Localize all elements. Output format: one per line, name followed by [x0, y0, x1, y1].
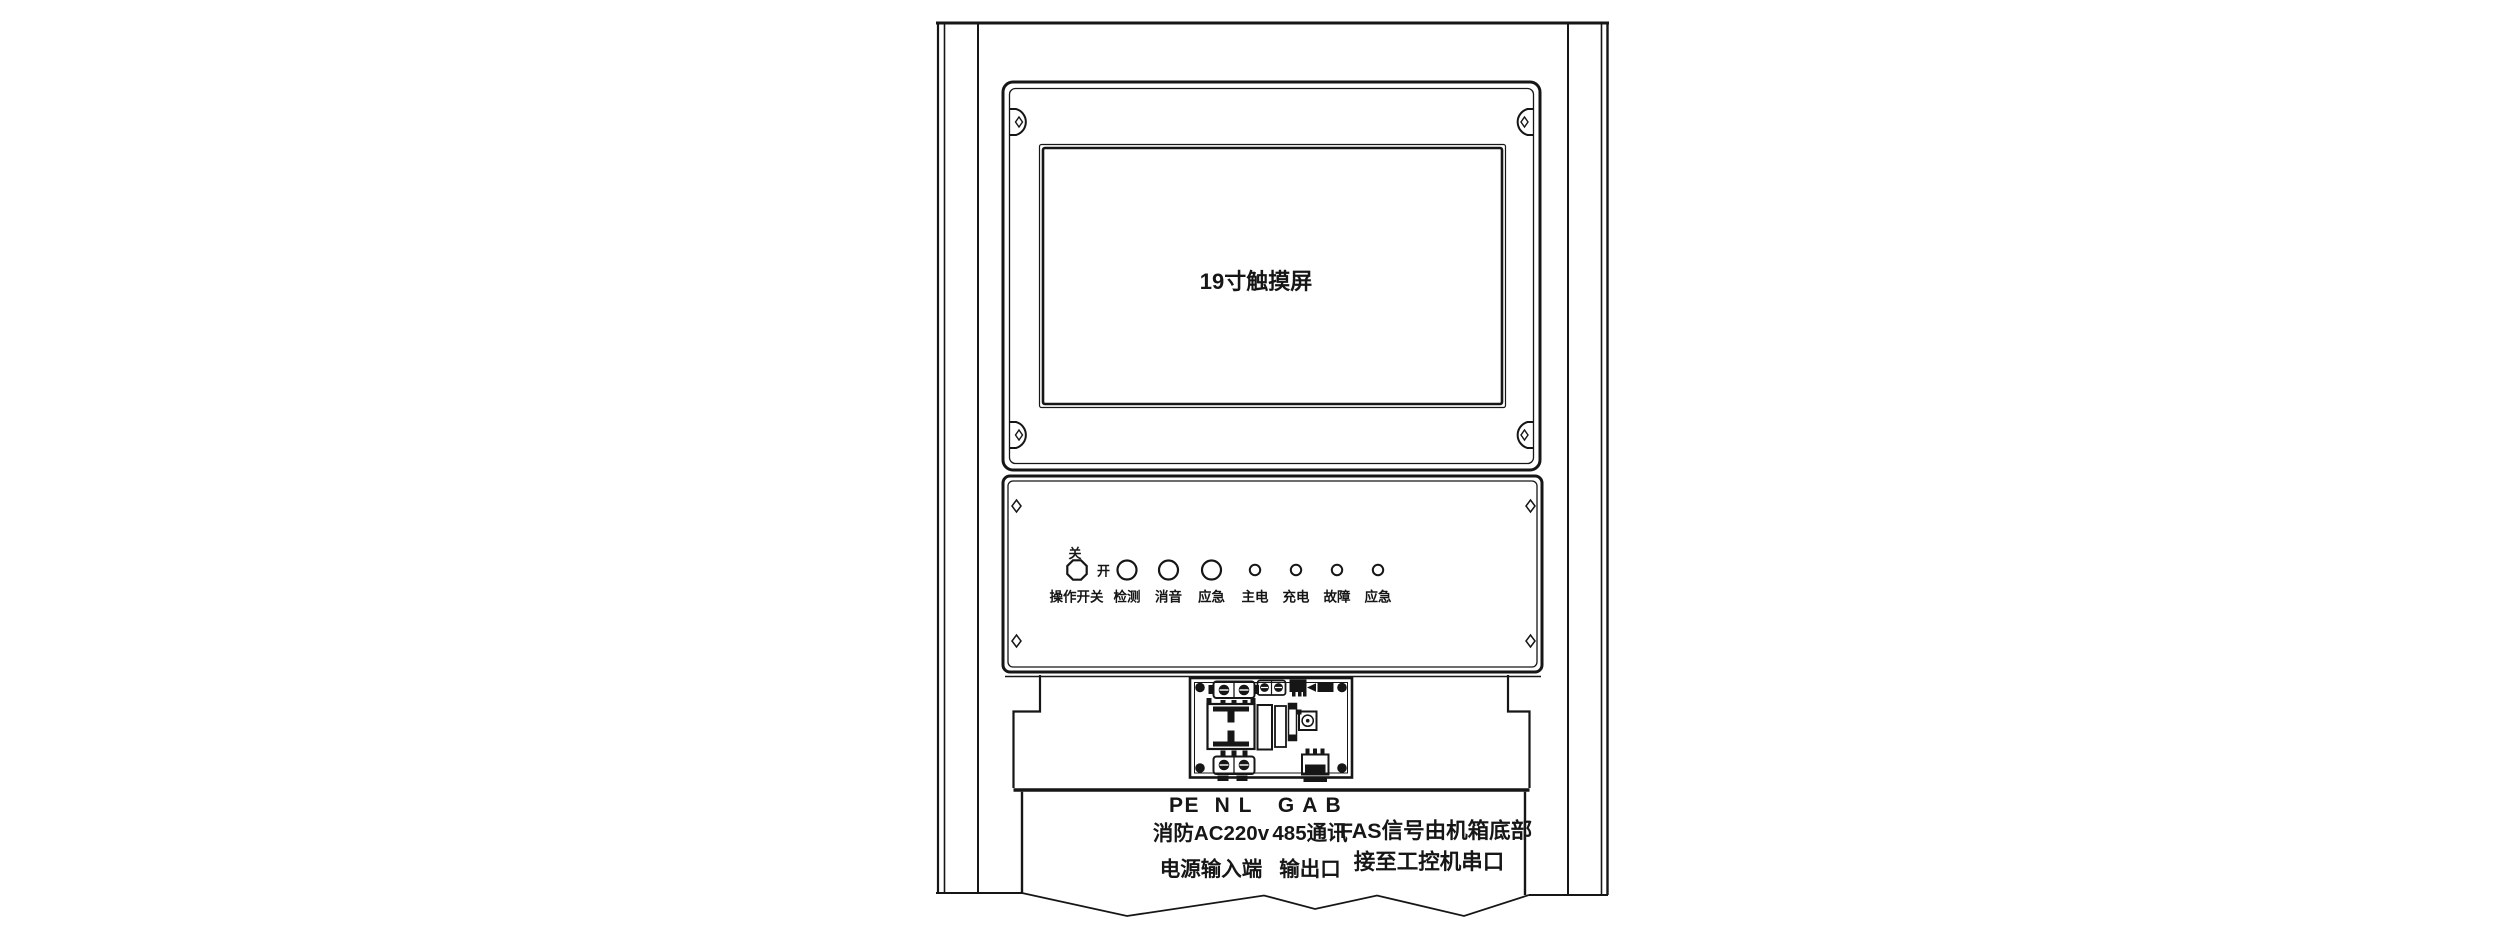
comm-pins: G A B [1278, 794, 1342, 817]
control-panel: 关 开 操作开关 检测 消音 应急 主电 充电 故障 [1003, 476, 1542, 677]
terminal-labels: PE N L 消防AC220v 电源输入端 G A B 485通讯 输出口 FA… [1153, 794, 1532, 881]
arrow-left-icon [1307, 683, 1316, 692]
screw-icon [1526, 635, 1535, 647]
pcb-buzzer [1297, 710, 1317, 731]
charge-led-label: 充电 [1283, 589, 1311, 605]
pcb-corner-pad [1337, 763, 1347, 773]
touchscreen-panel: 19寸触摸屏 [1003, 82, 1540, 470]
break-line-icon [1022, 893, 1529, 916]
main-power-led-label: 主电 [1242, 589, 1270, 605]
charge-led: 充电 [1283, 565, 1311, 605]
mounting-lug-icon [1010, 109, 1026, 135]
screw-icon [1012, 500, 1021, 512]
emergency-button: 应急 [1198, 561, 1226, 605]
mute-button: 消音 [1155, 561, 1183, 605]
mute-button-label: 消音 [1155, 589, 1183, 605]
switch-on-label: 开 [1097, 564, 1110, 579]
fault-led: 故障 [1324, 565, 1352, 605]
switch-label: 操作开关 [1050, 589, 1104, 605]
screw-icon [1526, 500, 1535, 512]
emergency-button-label: 应急 [1198, 589, 1226, 605]
main-power-led: 主电 [1242, 565, 1270, 605]
emergency-led-label: 应急 [1365, 589, 1393, 605]
pcb-board [1190, 678, 1352, 782]
mounting-lug-icon [1518, 422, 1534, 448]
pcb-corner-pad [1195, 683, 1205, 693]
power-line1: 消防AC220v [1153, 821, 1270, 845]
cabinet-frame [936, 23, 1609, 895]
fas-line1: FAS信号由机箱底部 [1340, 818, 1532, 843]
fault-led-label: 故障 [1324, 589, 1352, 605]
schematic-canvas: 19寸触摸屏 关 开 操作开关 检测 消音 应急 [0, 0, 2500, 950]
emergency-led: 应急 [1365, 565, 1393, 605]
pcb-capacitors [1258, 704, 1297, 750]
mounting-lug-icon [1010, 422, 1026, 448]
cabinet-drawing: 19寸触摸屏 关 开 操作开关 检测 消音 应急 [0, 0, 2500, 950]
comm-line2: 输出口 [1279, 857, 1341, 881]
power-terminal-label: PE N L 消防AC220v 电源输入端 [1153, 794, 1270, 881]
operation-switch: 关 开 操作开关 [1050, 546, 1111, 605]
screen-area: 19寸触摸屏 [1040, 145, 1506, 408]
screen-label: 19寸触摸屏 [1200, 269, 1312, 294]
power-line2: 电源输入端 [1160, 857, 1263, 881]
pcb-transformer [1207, 698, 1256, 749]
fas-line2: 接至工控机串口 [1354, 849, 1505, 874]
mounting-lug-icon [1518, 109, 1534, 135]
detect-button: 检测 [1114, 561, 1141, 605]
pcb-corner-pad [1195, 763, 1205, 773]
switch-off-label: 关 [1068, 546, 1081, 561]
fas-signal-label: FAS信号由机箱底部 接至工控机串口 [1340, 818, 1532, 874]
screw-icon [1012, 635, 1021, 647]
comm-line1: 485通讯 [1272, 822, 1348, 845]
pcb-component [1290, 680, 1307, 697]
comm-terminal-label: G A B 485通讯 输出口 [1272, 794, 1348, 881]
pcb-label-block [1307, 683, 1334, 693]
power-pins: PE N L [1169, 794, 1253, 817]
pcb-corner-pad [1337, 683, 1347, 693]
detect-button-label: 检测 [1114, 589, 1141, 605]
